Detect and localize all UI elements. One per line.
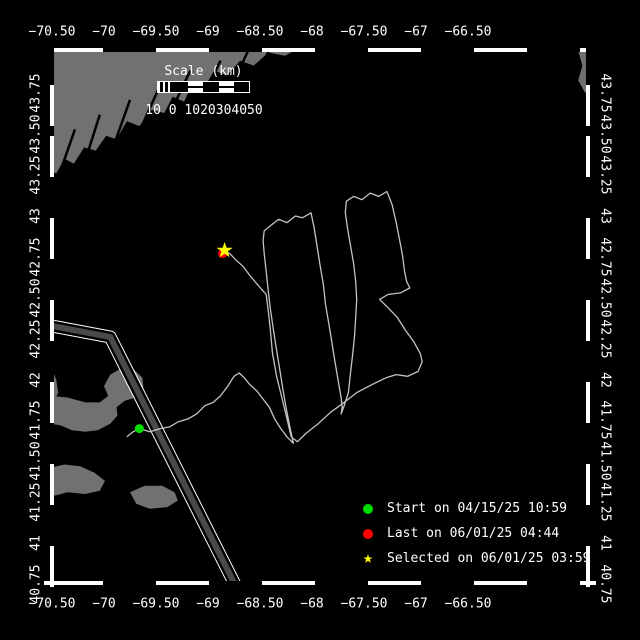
- axis-label-bottom: −68.50: [237, 598, 284, 611]
- start-marker[interactable]: [135, 424, 144, 433]
- axis-label-left: 41.75: [30, 401, 43, 440]
- axis-label-right: 42.50: [599, 278, 612, 317]
- axis-label-bottom: −68: [300, 598, 323, 611]
- axis-label-left: 43.75: [30, 74, 43, 113]
- map-frame-bottom: [44, 581, 596, 585]
- scale-bar-tick-labels: 10 0 1020304050: [145, 103, 263, 118]
- legend-start-label: Start on 04/15/25 10:59: [387, 501, 567, 516]
- axis-label-top: −70.50: [29, 26, 76, 39]
- map-frame-top: [50, 48, 590, 52]
- axis-label-right: 42.75: [599, 237, 612, 276]
- axis-label-left: 43.50: [30, 115, 43, 154]
- axis-label-right: 41.25: [599, 483, 612, 522]
- scale-bar: [157, 81, 250, 93]
- scale-bar-segment: [234, 82, 249, 92]
- axis-label-right: 41: [599, 535, 612, 551]
- axis-label-left: 43.25: [30, 156, 43, 195]
- scale-bar-segment: [203, 82, 219, 92]
- axis-label-left: 42.75: [30, 237, 43, 276]
- axis-label-top: −67: [404, 26, 427, 39]
- axis-label-bottom: −70: [92, 598, 115, 611]
- axis-label-top: −67.50: [341, 26, 388, 39]
- axis-label-left: 41: [30, 535, 43, 551]
- axis-label-left: 42.25: [30, 319, 43, 358]
- last-dot-icon: [363, 529, 373, 539]
- legend-row-selected: ★ Selected on 06/01/25 03:59: [358, 546, 591, 571]
- scale-bar-segment: [188, 82, 203, 92]
- scale-bar-segment: [219, 82, 234, 92]
- axis-label-bottom: −67.50: [341, 598, 388, 611]
- axis-label-right: 43.25: [599, 156, 612, 195]
- start-dot-icon: [363, 504, 373, 514]
- axis-label-left: 43: [30, 208, 43, 224]
- axis-label-right: 40.75: [599, 564, 612, 603]
- selected-star-icon: ★: [358, 550, 378, 567]
- axis-label-bottom: −66.50: [445, 598, 492, 611]
- map-frame-left: [50, 48, 54, 591]
- axis-label-left: 41.25: [30, 483, 43, 522]
- axis-label-top: −69: [196, 26, 219, 39]
- legend: Start on 04/15/25 10:59 Last on 06/01/25…: [358, 496, 591, 571]
- axis-label-right: 43.50: [599, 115, 612, 154]
- axis-label-left: 41.50: [30, 442, 43, 481]
- legend-row-start: Start on 04/15/25 10:59: [358, 496, 591, 521]
- axis-label-right: 43.75: [599, 74, 612, 113]
- scale-bar-title: Scale (km): [157, 64, 250, 79]
- axis-label-top: −70: [92, 26, 115, 39]
- axis-label-right: 43: [599, 208, 612, 224]
- axis-label-right: 42: [599, 372, 612, 388]
- axis-label-top: −66.50: [445, 26, 492, 39]
- axis-label-top: −69.50: [133, 26, 180, 39]
- legend-selected-label: Selected on 06/01/25 03:59: [387, 551, 591, 566]
- axis-label-left: 42: [30, 372, 43, 388]
- axis-label-bottom: −69: [196, 598, 219, 611]
- axis-label-left: 40.75: [30, 564, 43, 603]
- axis-label-bottom: −69.50: [133, 598, 180, 611]
- axis-label-right: 42.25: [599, 319, 612, 358]
- legend-row-last: Last on 06/01/25 04:44: [358, 521, 591, 546]
- axis-label-left: 42.50: [30, 278, 43, 317]
- axis-label-bottom: −67: [404, 598, 427, 611]
- legend-last-label: Last on 06/01/25 04:44: [387, 526, 559, 541]
- axis-label-top: −68: [300, 26, 323, 39]
- glider-track-map-window: Scale (km) 10 0 1020304050 Start on 04/1…: [0, 0, 640, 640]
- axis-label-right: 41.50: [599, 442, 612, 481]
- axis-label-right: 41.75: [599, 401, 612, 440]
- scale-bar-hatch-segment: [158, 82, 173, 92]
- axis-label-top: −68.50: [237, 26, 284, 39]
- scale-bar-segment: [173, 82, 188, 92]
